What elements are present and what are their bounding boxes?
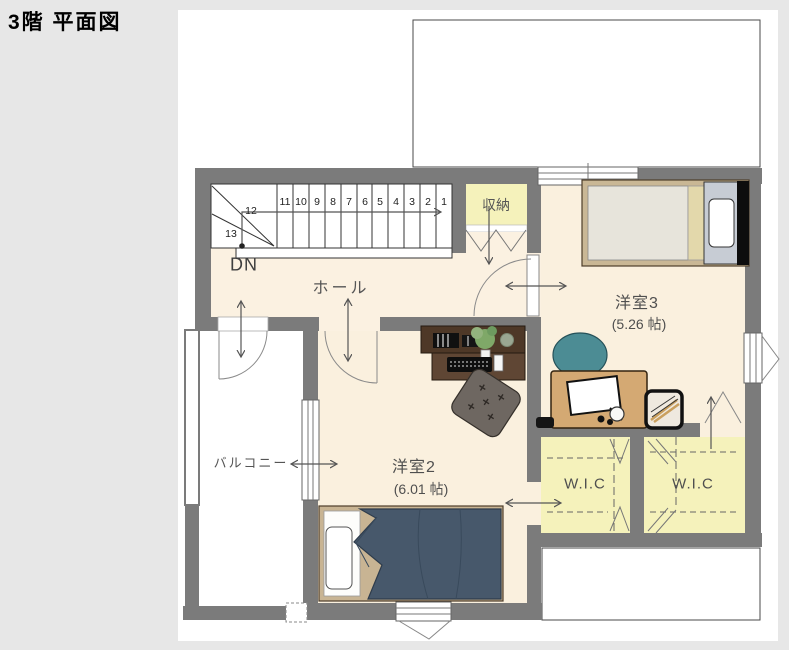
room-label-room3: 洋室3 [615, 289, 659, 313]
bed-room2 [319, 506, 503, 601]
stair-step-number: 2 [425, 196, 431, 208]
window-balcony-room2 [302, 400, 319, 500]
keyboard-icon [447, 357, 492, 372]
stair-step-number: 6 [362, 196, 368, 208]
stair-handrail [236, 248, 452, 258]
stair-step-number: 11 [280, 196, 291, 208]
stairs-dn-label: DN [230, 255, 258, 276]
floor-plan-page: 3階 平面図 DN ホール 収納 洋室3 (5.26 帖) 洋室2 (6.01 … [0, 0, 789, 650]
room-label-wic-left: W.I.C [564, 476, 606, 493]
stair-step-number: 12 [245, 205, 257, 217]
room-label-room2: 洋室2 [392, 453, 436, 477]
room-label-hall: ホール [312, 274, 369, 298]
bed-room3 [582, 180, 749, 266]
stair-step-number: 5 [377, 196, 383, 208]
headboard-room3 [737, 181, 749, 265]
stair-step-number: 4 [393, 196, 399, 208]
stair-step-number: 13 [225, 228, 237, 240]
room-label-balcony: バルコニー [214, 453, 289, 472]
balcony-pillar [286, 603, 307, 622]
balcony-door-threshold [218, 317, 268, 331]
page-title: 3階 平面図 [8, 6, 122, 36]
stair-start-dot [239, 243, 245, 249]
stair-step-number: 8 [330, 196, 336, 208]
room-size-room3: (5.26 帖) [612, 314, 666, 334]
room-label-storage: 収納 [482, 195, 510, 215]
roof-area-top [413, 20, 760, 167]
stair-step-number: 10 [295, 196, 307, 208]
roof-area-bottom [542, 548, 760, 620]
pillow-room3 [709, 199, 734, 247]
stair-step-number: 7 [346, 196, 352, 208]
stair-step-number: 1 [441, 196, 447, 208]
stair-step-number: 3 [409, 196, 415, 208]
balcony-railing [185, 330, 199, 505]
floor-plan-drawing [0, 0, 789, 650]
pillow-room2 [326, 527, 352, 589]
room-label-wic-right: W.I.C [672, 476, 714, 493]
room-size-room2: (6.01 帖) [394, 479, 448, 499]
stair-step-number: 9 [314, 196, 320, 208]
